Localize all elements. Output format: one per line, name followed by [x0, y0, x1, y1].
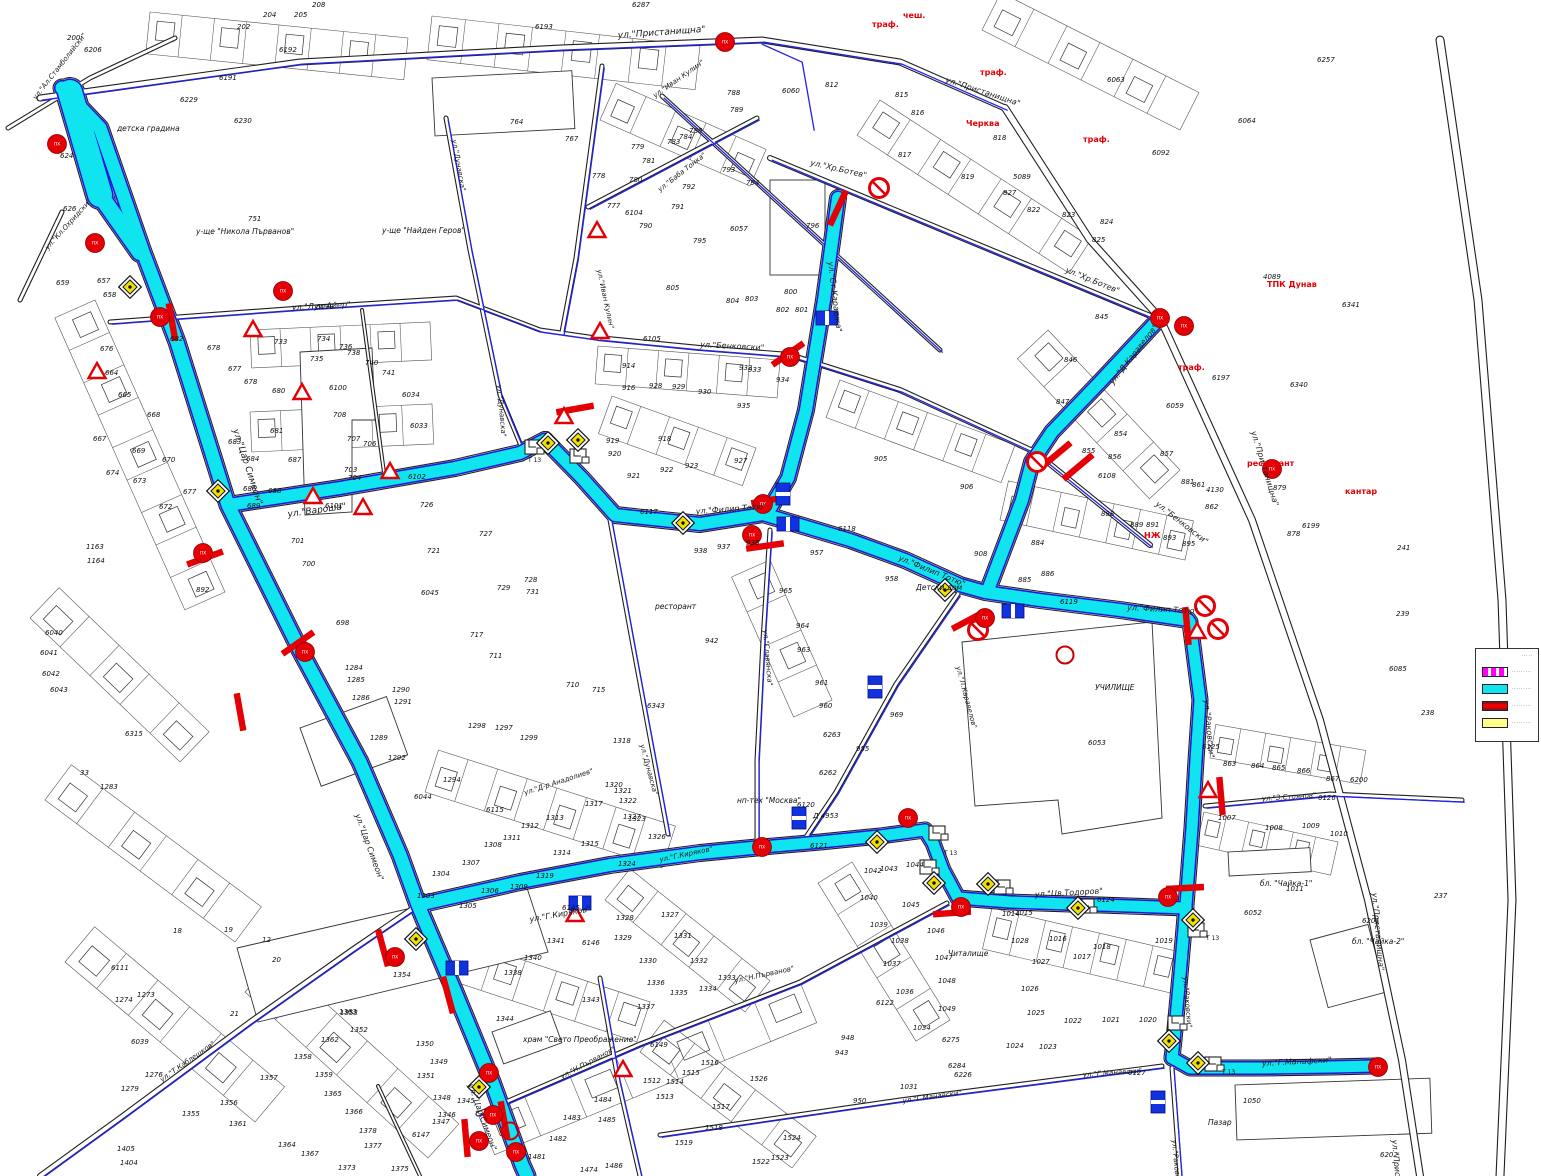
fire-hydrant-icon: ПХ — [753, 838, 772, 857]
parcel-number: 6226 — [954, 1071, 972, 1079]
map-canvas[interactable]: ПХПХПХПХПХПХПХПХПХПХПХПХПХПХПХПХПХПХПХПХ… — [0, 0, 1541, 1176]
parcel-number: 6146 — [582, 939, 600, 947]
building-outline — [749, 572, 775, 599]
parcel-number: 965 — [779, 587, 793, 595]
no-entry-icon — [1209, 620, 1228, 639]
fire-hydrant-icon: ПХ — [296, 643, 315, 662]
valve-bar-icon — [234, 693, 247, 732]
parcel-number: 1351 — [417, 1072, 435, 1080]
parcel-number: 918 — [658, 435, 672, 443]
parcel-number: 657 — [97, 277, 111, 285]
fire-hydrant-icon: ПХ — [507, 1143, 526, 1162]
street-name-label: ул."Пристанищна" — [617, 25, 706, 41]
parcel-number: 955 — [856, 745, 870, 753]
parcel-number: 864 — [1251, 762, 1264, 770]
building-outline — [611, 100, 635, 124]
parcel-number: 1050 — [1243, 1097, 1261, 1105]
parcel-boundary — [1009, 914, 1019, 955]
hydrant-label: ПХ — [787, 355, 793, 361]
parcel-number: 658 — [103, 291, 117, 299]
parcel-number: 1352 — [350, 1026, 368, 1034]
parcel-number: 701 — [291, 537, 304, 545]
building-outline — [1035, 343, 1063, 371]
triangle-marker-icon — [355, 499, 372, 514]
parcel-number: 1485 — [598, 1116, 616, 1124]
parcel-number: 948 — [841, 1034, 855, 1042]
parcel-boundary — [514, 779, 527, 821]
parcel-number: 805 — [666, 284, 680, 292]
fire-hydrant-icon: ПХ — [716, 33, 735, 52]
parcel-number: 6059 — [1166, 402, 1184, 410]
parcel-number: 963 — [797, 646, 810, 654]
parcel-number: 208 — [312, 1, 326, 9]
hydrant-symbol-icon — [570, 449, 589, 463]
parcel-number: 781 — [642, 157, 655, 165]
no-entry-icon — [870, 179, 889, 198]
parcel-number: 1340 — [524, 954, 542, 962]
parcel-number: 950 — [853, 1097, 867, 1105]
legend-note: ····· — [1482, 653, 1533, 663]
parcel-number: 6039 — [131, 1038, 149, 1046]
parcel-number: 726 — [420, 501, 434, 509]
parcel-number: 916 — [622, 384, 636, 392]
parcel-number: 1355 — [182, 1110, 200, 1118]
parcel-number: 6057 — [730, 225, 748, 233]
parcel-number: 1038 — [891, 937, 909, 945]
parcel-number: 738 — [347, 349, 361, 357]
building-outline — [1217, 737, 1233, 754]
parcel-number: 6315 — [125, 730, 143, 738]
street-name-label: ул."Н.Първанов" — [733, 964, 795, 985]
parcel-number: 20 — [272, 956, 281, 964]
hydrant-label: ПХ — [982, 616, 988, 622]
hydrant-label: ПХ — [490, 1113, 496, 1119]
parcel-number: 1015 — [1015, 909, 1033, 917]
parcel-number: 6199 — [1302, 522, 1320, 530]
parcel-number: 6197 — [1212, 374, 1230, 382]
hydrant-outlet — [1090, 907, 1097, 913]
building-outline — [1140, 455, 1168, 483]
parcel-number: 1324 — [618, 860, 636, 868]
parcel-number: 1292 — [388, 754, 406, 762]
parcel-number: 1308 — [484, 841, 502, 849]
parcel-number: 6033 — [410, 422, 428, 430]
parcel-number: 1023 — [1039, 1043, 1057, 1051]
legend-label: ········· — [1512, 703, 1532, 708]
hydrant-outlet — [1006, 888, 1013, 894]
parcel-number: 202 — [237, 23, 251, 31]
parcel-number: 1522 — [752, 1158, 770, 1166]
parcel-number: 823 — [1062, 211, 1075, 219]
street-name-label: ул."Г.Манавски" — [901, 1089, 962, 1105]
parcel-number: 735 — [310, 355, 324, 363]
parcel-number: 1322 — [619, 797, 637, 805]
parcel-number: 1523 — [771, 1154, 789, 1162]
parcel-number: 1297 — [495, 724, 513, 732]
building-outline — [955, 434, 977, 457]
parcel-number: 1279 — [121, 1085, 139, 1093]
parcel-boundary — [156, 527, 196, 545]
parcel-number: 1007 — [1218, 814, 1236, 822]
building-outline — [664, 359, 682, 377]
fire-hydrant-icon: ПХ — [899, 809, 918, 828]
parcel-number: 1367 — [301, 1150, 319, 1158]
parcel-boundary — [524, 1095, 541, 1136]
parcel-number: 878 — [1287, 530, 1301, 538]
fire-hydrant-icon: ПХ — [952, 898, 971, 917]
parcel-number: 717 — [470, 631, 484, 639]
legend-row: ········· — [1482, 680, 1533, 697]
poi-label: у-ще "Никола Първанов" — [195, 227, 294, 236]
poi-label: Пазар — [1208, 1118, 1232, 1127]
parcel-number: 1375 — [391, 1165, 409, 1173]
parcel-number: 6060 — [782, 87, 800, 95]
parcel-number: 893 — [1163, 534, 1176, 542]
parcel-number: 6122 — [876, 999, 894, 1007]
parcel-boundary — [570, 1076, 587, 1117]
poi-label: у-ще "Найден Геров" — [381, 226, 465, 235]
parcel-number: 204 — [263, 11, 276, 19]
poi-label: Читалище — [948, 949, 989, 958]
valve-band — [455, 961, 459, 975]
parcel-number: 670 — [162, 456, 176, 464]
building-outline — [258, 337, 275, 355]
parcel-number: 721 — [427, 547, 440, 555]
parcel-number: 891 — [1146, 521, 1159, 529]
hydrant-label: ПХ — [92, 241, 98, 247]
parcel-number: 706 — [363, 440, 377, 448]
building-outline — [206, 1052, 237, 1083]
building-outline — [604, 354, 622, 372]
parcel-number: 1364 — [278, 1141, 296, 1149]
hydrant-label: ПХ — [476, 1139, 482, 1145]
parcel-number: 867 — [1326, 775, 1340, 783]
parcel-number: 1311 — [503, 834, 521, 842]
parcel-number: 687 — [288, 456, 302, 464]
poi-label: нп-тех "Москва" — [737, 796, 801, 805]
parcel-number: 6284 — [948, 1062, 966, 1070]
parcel-number: 865 — [1272, 764, 1286, 772]
parcel-number: 825 — [1092, 236, 1106, 244]
parcel-number: 791 — [671, 203, 684, 211]
parcel-number: 676 — [100, 345, 114, 353]
parcel-number: 1318 — [613, 737, 631, 745]
parcel-number: 888 — [1101, 510, 1115, 518]
building-outline — [897, 412, 919, 435]
red-annotation-label: траф. — [872, 20, 899, 29]
parcel-number: 6044 — [414, 793, 432, 801]
building-outline — [1228, 848, 1311, 876]
parcel-number: 1285 — [347, 676, 365, 684]
parcel-number: 1321 — [614, 787, 632, 795]
parcel-number: 1048 — [938, 977, 956, 985]
parcel-number: 710 — [566, 681, 580, 689]
poi-label: бл. "Чайка-2" — [1352, 937, 1404, 946]
street-name-label: ул."Пристанищна" — [1390, 1138, 1406, 1176]
parcel-boundary — [1241, 822, 1248, 855]
parcel-number: 1022 — [1064, 1017, 1082, 1025]
parcel-boundary — [543, 971, 556, 1011]
parcel-number: 6229 — [180, 96, 198, 104]
parcel-boundary — [1285, 737, 1291, 771]
parcel-number: 863 — [1223, 760, 1236, 768]
parcel-boundary — [339, 32, 343, 74]
building-outline — [1249, 830, 1265, 848]
building-outline — [1267, 746, 1283, 763]
fire-hydrant-icon: ПХ — [1175, 317, 1194, 336]
parcel-number: 1294 — [443, 776, 461, 784]
parcel-number: 1358 — [294, 1053, 312, 1061]
parcel-number: 802 — [776, 306, 790, 314]
parcel-number: 804 — [726, 297, 739, 305]
parcel-number: 6102 — [408, 473, 426, 481]
parcel-number: 1010 — [1330, 830, 1348, 838]
hydrant-label: ПХ — [905, 816, 911, 822]
fire-hydrant-icon: ПХ — [194, 544, 213, 563]
fire-hydrant-icon: ПХ — [1369, 1058, 1388, 1077]
parcel-boundary — [1063, 927, 1073, 968]
red-annotation-label: траф. — [1178, 363, 1205, 372]
parcel-number: 6100 — [329, 384, 347, 392]
parcel-number: 1514 — [666, 1078, 684, 1086]
parcel-number: 1044 — [906, 861, 924, 869]
parcel-number: 740 — [365, 359, 379, 367]
building-outline — [437, 26, 458, 48]
street-name-label: ул."Дунавска" — [495, 383, 508, 437]
symbol-ref-label: Т 13 — [943, 850, 957, 857]
parcel-number: 6053 — [1088, 739, 1106, 747]
building-outline — [163, 721, 193, 750]
poi-label: детска градина — [116, 124, 180, 133]
parcel-number: 6263 — [823, 731, 841, 739]
legend-swatch-red-line — [1482, 701, 1508, 711]
parcel-number: 669 — [132, 447, 146, 455]
parcel-boundary — [178, 15, 182, 57]
parcel-number: 674 — [106, 469, 119, 477]
parcel-number: 914 — [622, 362, 635, 370]
parcel-number: 827 — [1003, 189, 1017, 197]
hydrant-label: ПХ — [1157, 316, 1163, 322]
parcel-number: 672 — [159, 503, 173, 511]
parcel-number: 6108 — [1098, 472, 1116, 480]
parcel-number: 1315 — [581, 840, 599, 848]
parcel-number: 1373 — [338, 1164, 356, 1172]
parcel-number: 801 — [795, 306, 808, 314]
legend-row: ········· — [1482, 697, 1533, 714]
parcel-number: 1018 — [1093, 943, 1111, 951]
hydrant-label: ПХ — [280, 289, 286, 295]
parcel-number: 1518 — [705, 1124, 723, 1132]
parcel-number: 1009 — [1302, 822, 1320, 830]
building-outline — [556, 982, 579, 1006]
street-name-label: ул."Иван Кулин" — [595, 268, 616, 330]
parcel-number: 731 — [526, 588, 539, 596]
poi-label: Детски дом — [915, 583, 963, 592]
parcel-number: 678 — [207, 344, 221, 352]
symbol-ref-label: Т 13 — [527, 457, 541, 464]
parcel-number: 1327 — [661, 911, 679, 919]
parcel-number: 1049 — [938, 1005, 956, 1013]
parcel-boundary — [561, 31, 566, 75]
parcel-number: 862 — [1205, 503, 1219, 511]
parcel-number: 1519 — [675, 1139, 693, 1147]
poi-label: УЧИЛИЩЕ — [1095, 683, 1135, 692]
parcel-number: 1298 — [468, 722, 486, 730]
parcel-number: 1362 — [321, 1036, 339, 1044]
parcel-number: 238 — [1421, 709, 1435, 717]
valve-band — [776, 492, 790, 496]
red-annotation-label: кантар — [1345, 487, 1377, 496]
parcel-number: 698 — [336, 619, 350, 627]
building-outline — [379, 414, 396, 433]
street-name-label: ул."Т.Каблешков" — [158, 1040, 217, 1085]
parcel-number: 6045 — [421, 589, 439, 597]
fire-hydrant-icon: ПХ — [386, 948, 405, 967]
parcel-number: 1031 — [900, 1083, 918, 1091]
parcel-number: 6262 — [819, 769, 837, 777]
parcel-number: 1040 — [860, 894, 878, 902]
road-surface — [1440, 40, 1512, 1176]
building-outline — [610, 406, 632, 429]
triangle-marker-icon — [245, 321, 262, 336]
legend-swatch-yellow-line — [1482, 718, 1508, 728]
parcel-number: 1024 — [1006, 1042, 1024, 1050]
parcel-boundary — [686, 353, 689, 391]
building-outline — [992, 918, 1011, 940]
parcel-number: 1284 — [345, 664, 363, 672]
parcel-number: 681 — [270, 427, 283, 435]
parcel-number: 6149 — [650, 1041, 668, 1049]
parcel-boundary — [1310, 742, 1316, 776]
legend-label: ·········· — [1512, 669, 1533, 674]
parcel-boundary — [1147, 76, 1166, 113]
parcel-number: 957 — [810, 549, 824, 557]
red-annotation-label: чеш. — [903, 11, 925, 20]
valve-band — [1151, 1100, 1165, 1104]
parcel-number: 6340 — [1290, 381, 1308, 389]
parcel-number: 815 — [895, 91, 909, 99]
parcel-number: 6193 — [535, 23, 553, 31]
parcel-number: 1163 — [86, 543, 104, 551]
parcel-number: 727 — [479, 530, 493, 538]
building-outline — [769, 994, 802, 1023]
parcel-number: 1344 — [496, 1015, 514, 1023]
parcel-number: 795 — [693, 237, 707, 245]
gate-valve-icon — [446, 961, 468, 975]
parcel-number: 703 — [344, 466, 357, 474]
parcel-number: 6034 — [402, 391, 420, 399]
valve-band — [792, 816, 806, 820]
parcel-boundary — [98, 397, 138, 415]
valve-band — [1011, 604, 1015, 618]
parcel-number: 1312 — [521, 822, 539, 830]
parcel-number: 792 — [682, 183, 696, 191]
parcel-number: 707 — [347, 435, 361, 443]
parcel-number: 1313 — [546, 814, 564, 822]
parcel-number: 1348 — [433, 1094, 451, 1102]
parcel-number: 677 — [228, 365, 242, 373]
parcel-number: 6052 — [1244, 909, 1262, 917]
parcel-boundary — [630, 97, 646, 134]
parcel-number: 1307 — [462, 859, 480, 867]
parcel-number: 817 — [898, 151, 912, 159]
parcel-number: 1303 — [417, 892, 435, 900]
parcel-number: 1164 — [87, 557, 105, 565]
valve-band — [786, 517, 790, 531]
poi-label: храм "Свето Преображение" — [522, 1035, 637, 1044]
legend-swatch-water-main — [1482, 684, 1508, 694]
parcel-number: 6111 — [111, 964, 129, 972]
hydrant-label: ПХ — [958, 905, 964, 911]
no-entry-icon — [1028, 453, 1047, 472]
parcel-boundary — [778, 665, 816, 682]
hydrant-outlet — [582, 457, 589, 463]
gate-valve-icon — [1002, 604, 1024, 618]
parcel-number: 1357 — [260, 1074, 278, 1082]
street-name-label: ул."Пристанищна" — [943, 75, 1021, 108]
building-outline — [994, 10, 1021, 36]
hydrant-symbol-icon — [929, 826, 948, 840]
building-outline — [873, 112, 900, 139]
parcel-number: 6287 — [632, 1, 650, 9]
parcel-number: 895 — [1182, 540, 1196, 548]
parcel-number: 682 — [170, 335, 184, 343]
building-outline — [1126, 76, 1153, 102]
parcel-number: 624 — [60, 152, 73, 160]
parcel-number: 779 — [631, 143, 645, 151]
parcel-number: 1289 — [370, 734, 388, 742]
parcel-number: 4130 — [1206, 486, 1224, 494]
symbol-ref-label: Т 13 — [1221, 1069, 1235, 1076]
hydrant-label: ПХ — [749, 533, 755, 539]
parcel-number: 846 — [1064, 356, 1078, 364]
parcel-number: 812 — [825, 81, 839, 89]
hydrant-label: ПХ — [200, 551, 206, 557]
parcel-boundary — [494, 24, 499, 68]
parcel-number: 1329 — [614, 934, 632, 942]
parcel-number: 1338 — [504, 969, 522, 977]
parcel-number: 1017 — [1073, 953, 1091, 961]
symbol-ref-label: Т 13 — [1205, 935, 1219, 942]
parcel-number: 934 — [776, 376, 789, 384]
parcel-number: 889 — [1130, 521, 1144, 529]
fire-hydrant-icon: ПХ — [976, 609, 995, 628]
parcel-number: 6200 — [1350, 776, 1368, 784]
parcel-number: 6126 — [1318, 794, 1336, 802]
parcel-number: 793 — [722, 166, 735, 174]
parcel-number: 885 — [1018, 576, 1032, 584]
legend-label: ········· — [1512, 720, 1532, 725]
parcel-number: 856 — [1108, 453, 1122, 461]
parcel-number: 239 — [1396, 610, 1410, 618]
parcel-number: 708 — [333, 411, 347, 419]
hydrant-label: ПХ — [392, 955, 398, 961]
parcel-number: 788 — [727, 89, 741, 97]
parcel-number: 927 — [734, 457, 748, 465]
parcel-number: 6192 — [279, 46, 297, 54]
parcel-number: 6064 — [1238, 117, 1256, 125]
parcel-number: 6147 — [412, 1131, 430, 1139]
parcel-number: 790 — [639, 222, 653, 230]
parcel-number: 1343 — [582, 996, 600, 1004]
parcel-number: 1043 — [880, 865, 898, 873]
building-outline — [838, 390, 860, 413]
parcel-number: 961 — [815, 679, 828, 687]
valve-band — [868, 685, 882, 689]
building-outline — [72, 312, 98, 338]
parcel-number: 960 — [819, 702, 833, 710]
parcel-number: 1377 — [364, 1142, 382, 1150]
